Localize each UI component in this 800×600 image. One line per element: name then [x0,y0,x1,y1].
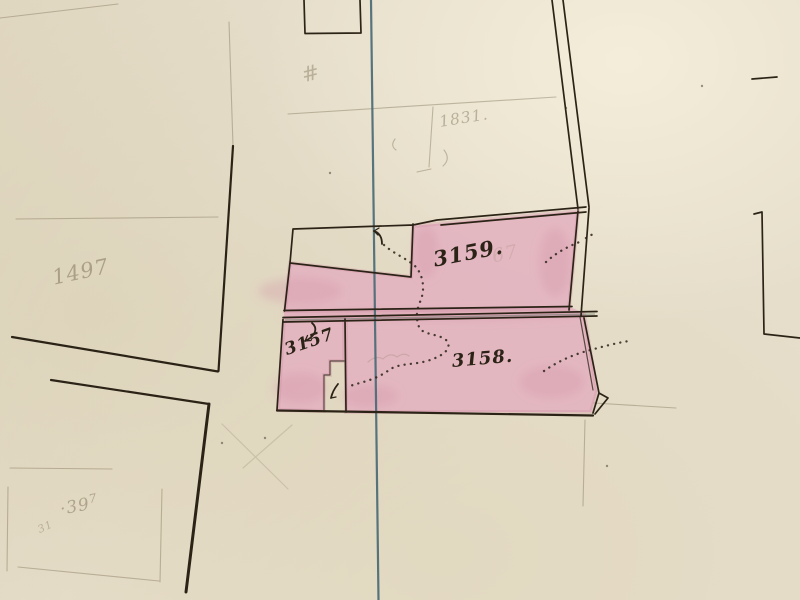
pink-blob [539,228,571,296]
pink-blob [520,366,584,398]
map-drawing [0,0,800,600]
pink-parcel-fills [258,211,597,412]
pink-blob [258,278,342,304]
cadastral-map-scan: 3159. 3158. 3157 1497 1831. ·397 31 # 67 [0,0,800,600]
pink-blob [342,385,398,407]
heavy-road-line [186,404,209,592]
